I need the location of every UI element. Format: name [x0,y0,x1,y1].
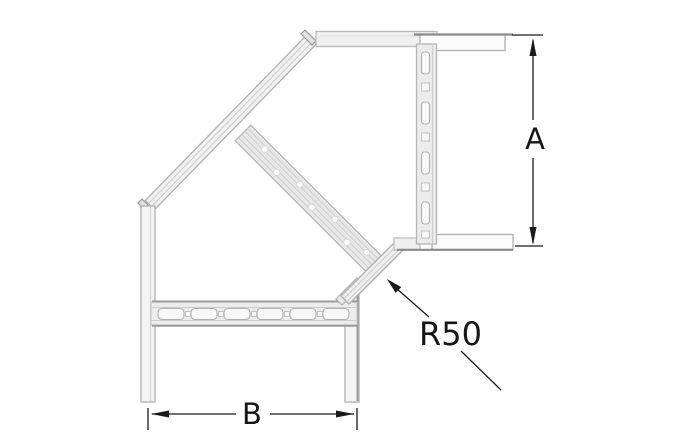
dimension-arrowhead-right-icon [336,411,354,418]
dimension-a: A [512,35,545,246]
radius-leader-line-upper [396,288,429,317]
rung-vertical [417,44,437,244]
dimension-b: B [148,397,357,431]
dimension-arrowhead-up-icon [530,38,537,56]
dimension-b-label: B [242,397,262,431]
dimension-a-label: A [525,122,545,156]
dimension-arrowhead-down-icon [530,227,537,245]
radius-leader-line-lower [461,351,501,390]
top-rail [316,32,513,51]
dimension-arrowhead-left-icon [151,411,169,418]
radius-label: R50 [419,315,482,353]
rung-horizontal [151,302,357,326]
radius-annotation: R50 [387,279,501,390]
drawing-canvas: A B R50 [0,0,692,448]
ladder-bend-drawing: A B R50 [0,0,692,448]
bottom-rail-right-leg [394,235,513,251]
